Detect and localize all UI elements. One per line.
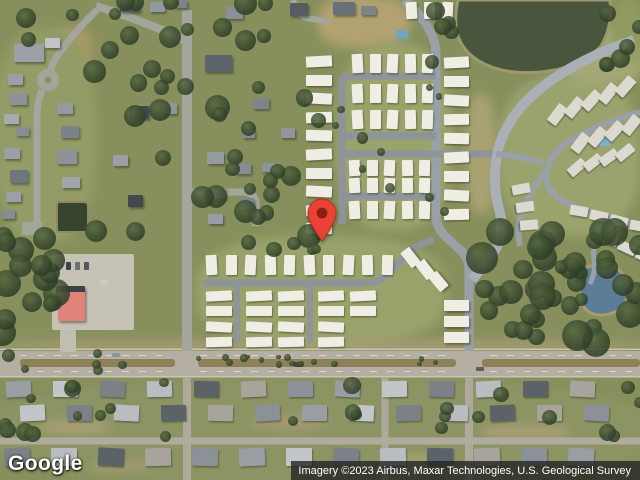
tree-canopy (163, 0, 179, 10)
tree-canopy (213, 18, 231, 36)
tree-canopy (177, 78, 194, 95)
tree-canopy (149, 99, 171, 121)
tree-canopy (257, 29, 270, 42)
tree-canopy (65, 380, 79, 394)
tree-canopy (417, 362, 422, 367)
tree-canopy (159, 26, 181, 48)
tree-canopy (621, 381, 635, 395)
tree-canopy (118, 361, 126, 369)
tree-canopy (160, 431, 171, 442)
tree-canopy (22, 292, 42, 312)
tree-canopy (250, 209, 266, 225)
tree-canopy (101, 41, 119, 59)
tree-canopy (480, 301, 498, 319)
tree-canopy (0, 422, 16, 438)
tree-canopy (425, 193, 434, 202)
tree-canopy (16, 8, 37, 29)
tree-canopy (426, 84, 434, 92)
tree-canopy (486, 218, 514, 246)
tree-canopy (436, 93, 442, 99)
tree-canopy (245, 355, 249, 359)
tree-canopy (345, 404, 362, 421)
tree-canopy (499, 280, 523, 304)
tree-canopy (616, 300, 640, 328)
location-pin[interactable] (303, 197, 341, 245)
tree-canopy (93, 349, 102, 358)
tree-canopy (289, 361, 294, 366)
attribution-text: Imagery ©2023 Airbus, Maxar Technologies… (298, 465, 631, 477)
tree-canopy (337, 106, 345, 114)
tree-canopy (66, 9, 79, 22)
tree-canopy (226, 359, 233, 366)
tree-canopy (120, 26, 139, 45)
tree-canopy (241, 235, 256, 250)
tree-canopy (493, 387, 508, 402)
tree-canopy (435, 422, 448, 435)
tree-canopy (196, 356, 201, 361)
tree-canopy (258, 0, 273, 11)
tree-canopy (385, 183, 395, 193)
tree-canopy (357, 132, 368, 143)
tree-canopy (575, 293, 588, 306)
tree-canopy (126, 222, 145, 241)
tree-canopy (288, 416, 298, 426)
tree-canopy (159, 378, 169, 388)
tree-canopy (105, 403, 116, 414)
tree-canopy (419, 356, 425, 362)
tree-canopy (359, 165, 366, 172)
tree-canopy (2, 349, 15, 362)
tree-canopy (296, 89, 314, 107)
tree-canopy (472, 411, 485, 424)
tree-canopy (235, 30, 256, 51)
tree-canopy (244, 183, 256, 195)
tree-canopy (124, 105, 146, 127)
tree-canopy (26, 394, 35, 403)
tree-canopy (542, 410, 557, 425)
google-logo[interactable]: Google (8, 452, 83, 476)
tree-canopy (191, 186, 213, 208)
attribution-bar: Imagery ©2023 Airbus, Maxar Technologies… (291, 461, 640, 480)
tree-canopy (21, 365, 29, 373)
tree-canopy (377, 148, 384, 155)
tree-canopy (331, 361, 338, 368)
tree-canopy (21, 32, 36, 47)
tree-canopy (276, 355, 281, 360)
tree-canopy (263, 186, 280, 203)
tree-canopy (466, 242, 498, 274)
tree-canopy (520, 304, 540, 324)
tree-canopy (619, 39, 635, 55)
tree-canopy (433, 360, 438, 365)
tree-canopy (181, 23, 194, 36)
tree-canopy (284, 354, 291, 361)
tree-canopy (225, 162, 239, 176)
tree-canopy (475, 280, 494, 299)
tree-canopy (440, 207, 449, 216)
tree-canopy (33, 227, 56, 250)
tree-canopy (266, 242, 282, 258)
pin-body (308, 199, 336, 241)
tree-canopy (632, 20, 640, 34)
tree-canopy (241, 121, 256, 136)
tree-canopy (130, 74, 147, 91)
tree-canopy (298, 361, 303, 366)
tree-canopy (332, 122, 340, 130)
tree-canopy (425, 55, 439, 69)
tree-canopy (234, 0, 257, 15)
tree-canopy (287, 237, 301, 251)
tree-canopy (599, 5, 616, 22)
tree-canopy (143, 60, 161, 78)
tree-canopy (311, 244, 321, 254)
tree-canopy (276, 361, 282, 367)
tree-canopy (109, 8, 121, 20)
tree-canopy (601, 218, 628, 245)
tree-canopy (9, 255, 31, 277)
tree-canopy (95, 410, 106, 421)
tree-canopy (634, 397, 640, 408)
tree-canopy (212, 107, 227, 122)
tree-canopy (311, 113, 325, 127)
tree-canopy (85, 220, 108, 243)
tree-canopy (24, 426, 41, 443)
tree-canopy (73, 411, 83, 421)
tree-canopy (155, 150, 171, 166)
tree-canopy (343, 377, 360, 394)
tree-canopy (160, 69, 175, 84)
tree-canopy (252, 81, 265, 94)
tree-canopy (311, 359, 317, 365)
tree-canopy (83, 60, 105, 82)
tree-canopy (259, 357, 265, 363)
tree-canopy (263, 173, 278, 188)
tree-canopy (629, 235, 640, 255)
pin-dot (317, 208, 328, 219)
tree-canopy (440, 402, 454, 416)
map-viewport[interactable]: Google Imagery ©2023 Airbus, Maxar Techn… (0, 0, 640, 480)
